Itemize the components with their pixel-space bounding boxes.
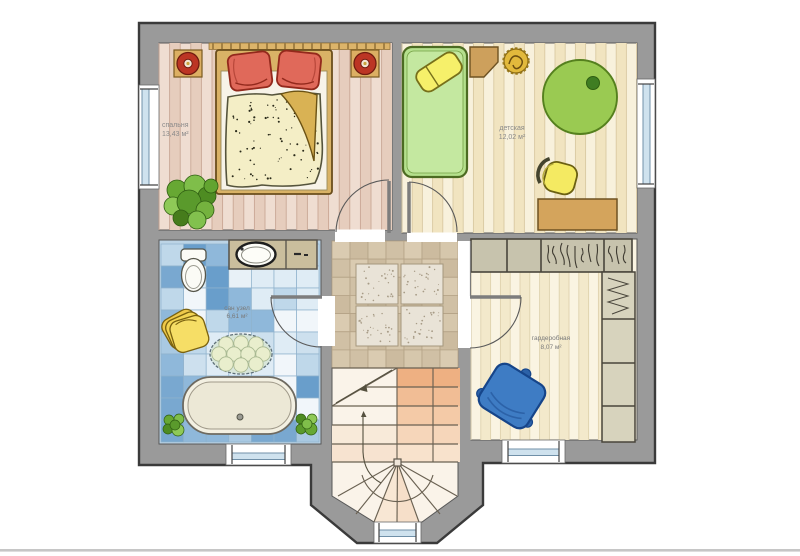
svg-text:8,07 м²: 8,07 м² — [540, 344, 562, 351]
svg-text:13,43 м²: 13,43 м² — [162, 131, 189, 138]
svg-text:сан узел: сан узел — [224, 305, 250, 312]
svg-text:спальня: спальня — [162, 122, 189, 129]
svg-text:6,61 м²: 6,61 м² — [226, 313, 248, 320]
svg-text:детская: детская — [499, 125, 524, 132]
svg-text:гардеробная: гардеробная — [532, 334, 571, 342]
svg-text:12,02 м²: 12,02 м² — [499, 134, 526, 141]
